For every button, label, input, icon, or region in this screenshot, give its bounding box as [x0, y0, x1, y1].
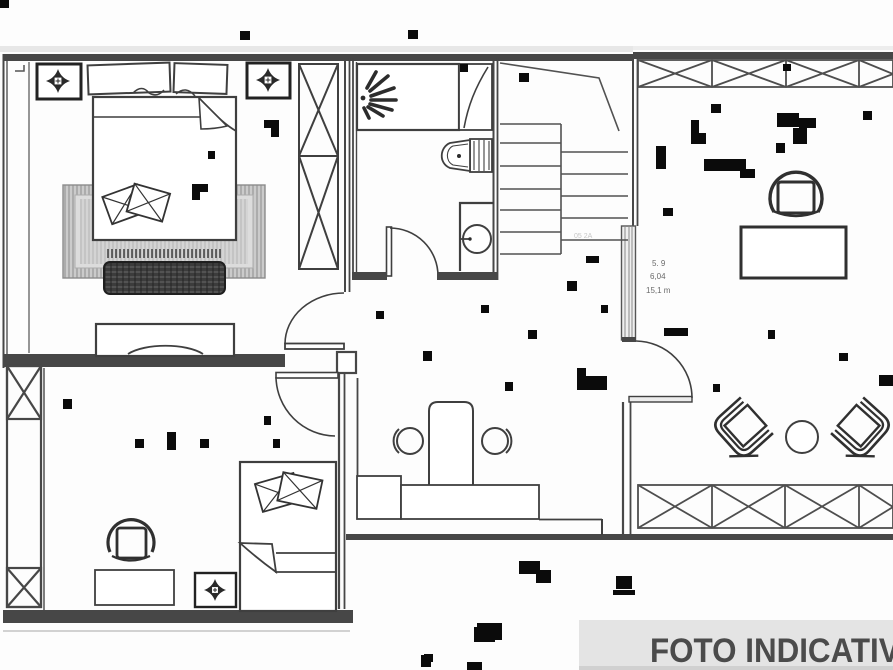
svg-text:FOTO INDICATIVA: FOTO INDICATIVA	[650, 632, 893, 670]
svg-text:15,1 m: 15,1 m	[646, 286, 671, 295]
svg-text:05 2A: 05 2A	[574, 233, 593, 240]
svg-text:5. 9: 5. 9	[652, 259, 666, 268]
svg-text:6,04: 6,04	[650, 272, 666, 281]
